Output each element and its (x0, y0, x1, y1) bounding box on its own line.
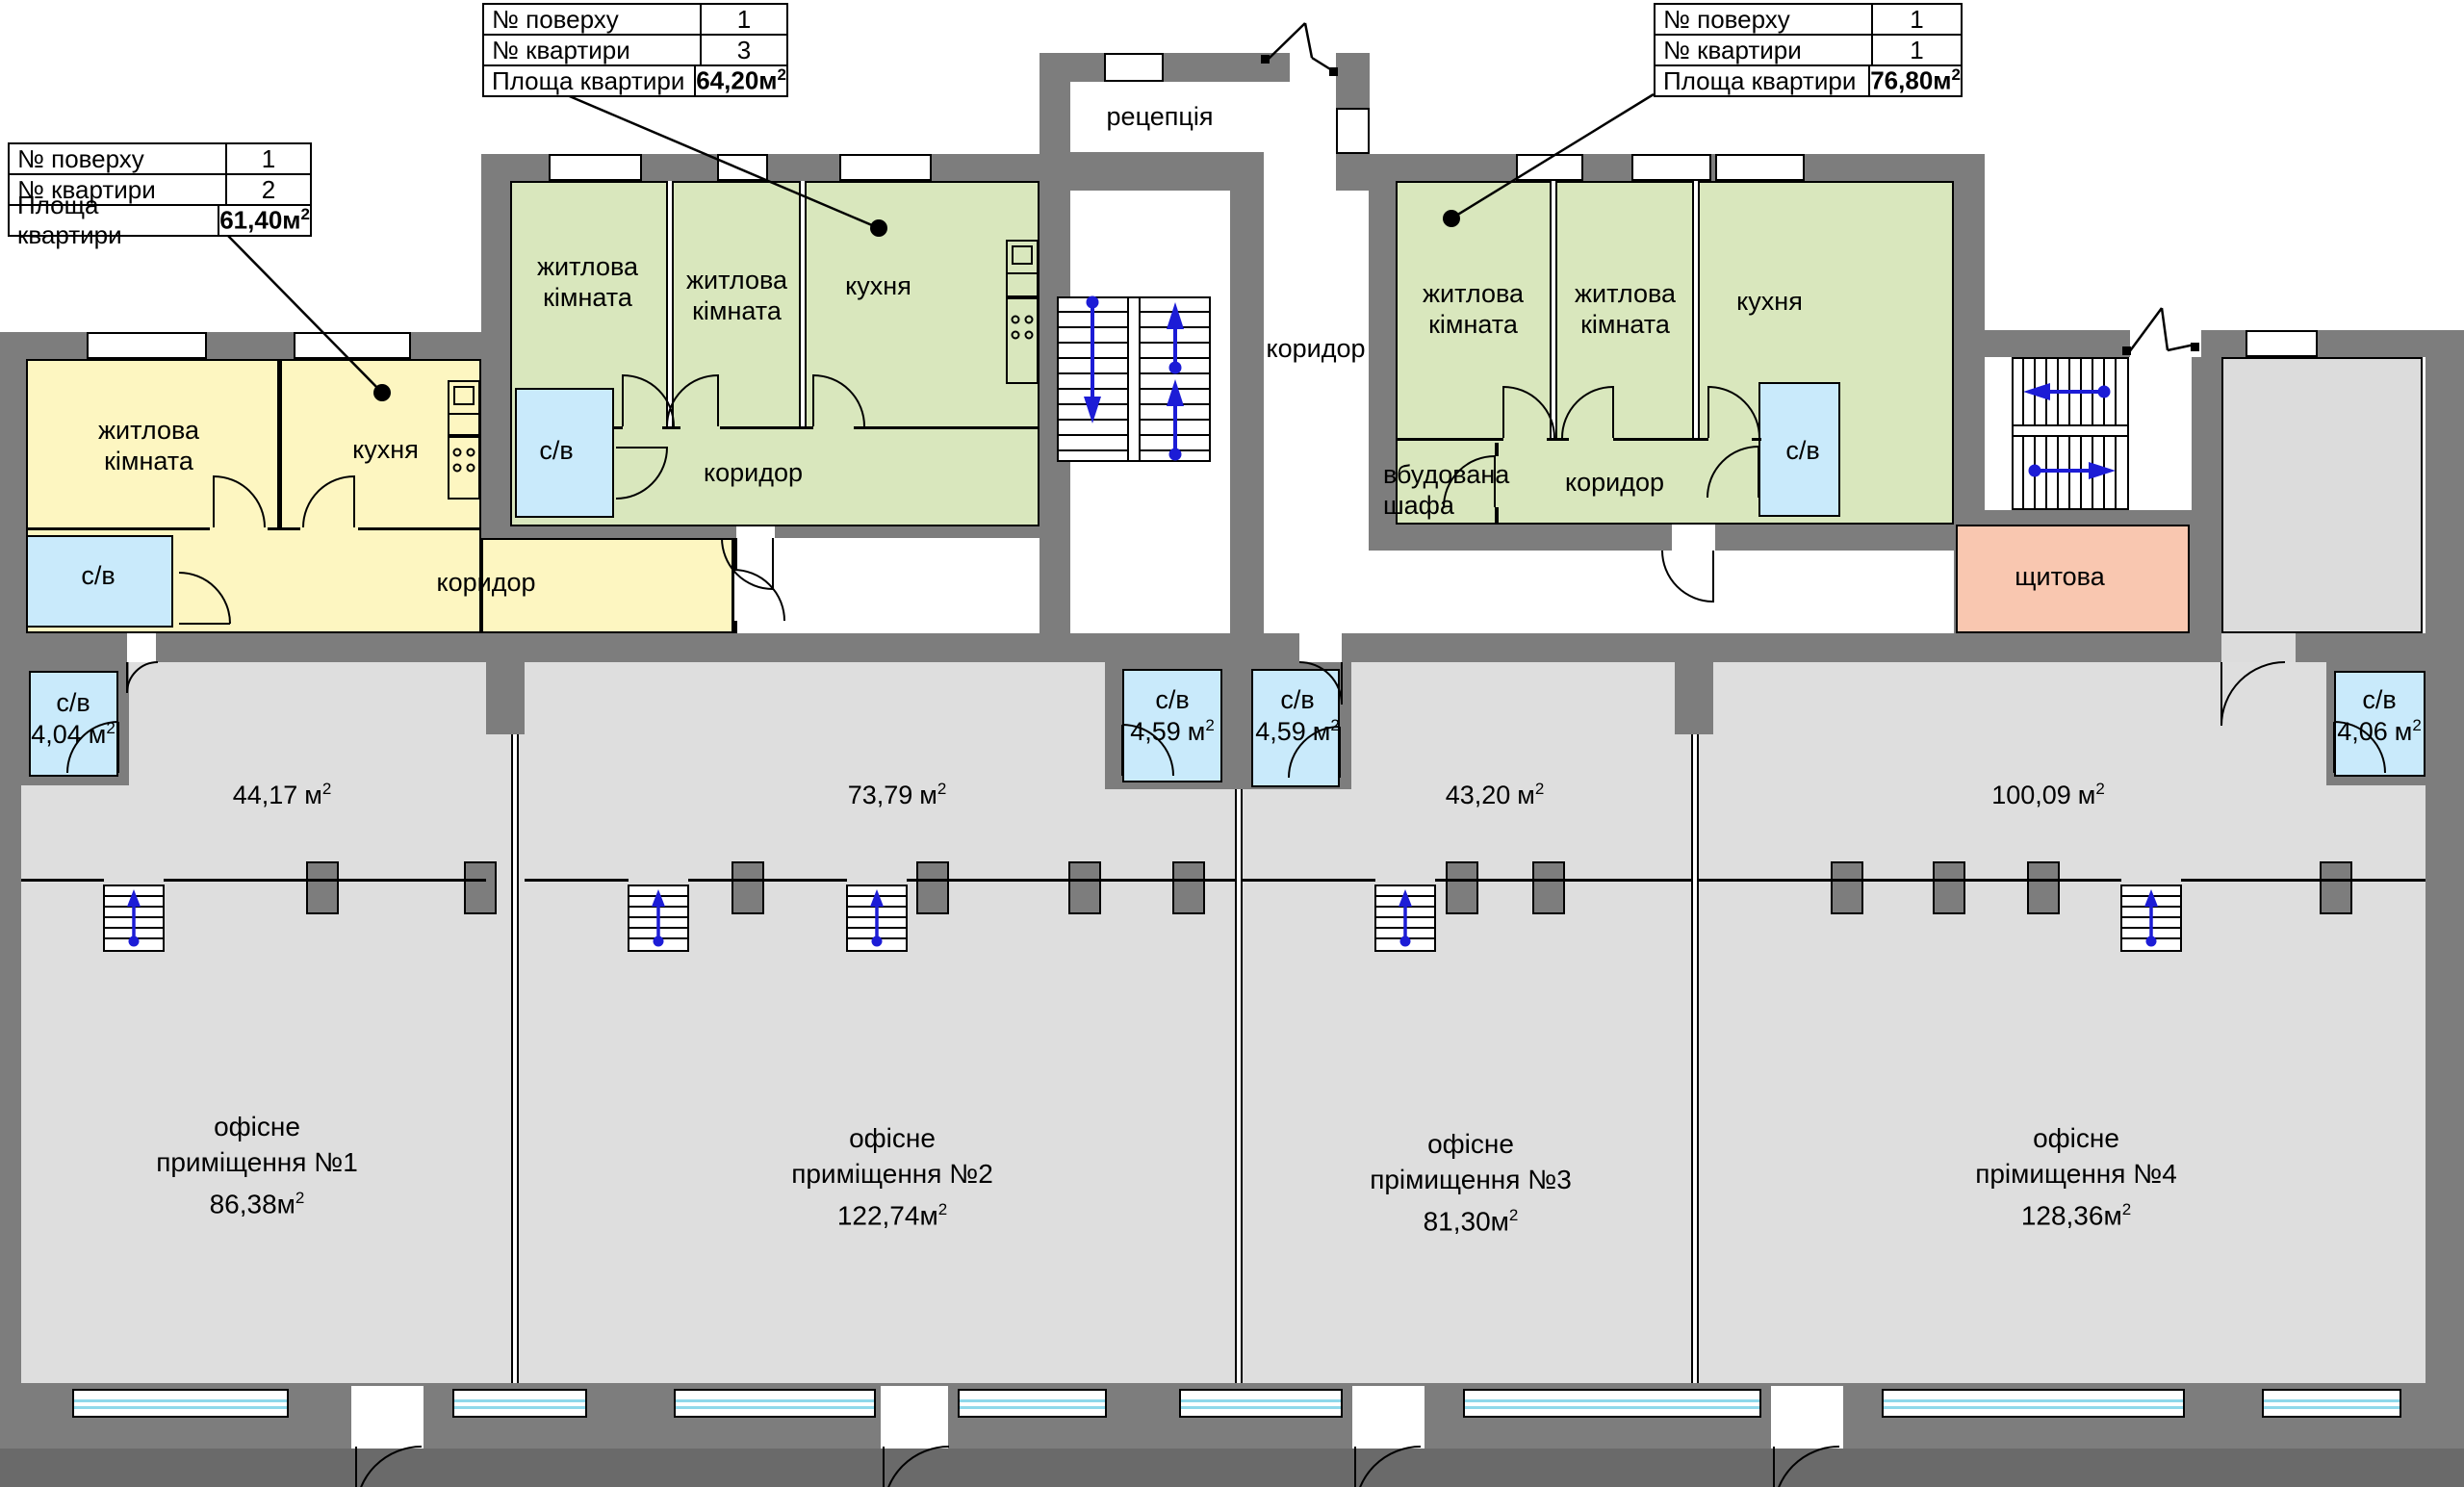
column (731, 861, 764, 914)
door-opening (736, 526, 775, 538)
table-cell-value: 2 (227, 175, 310, 205)
window (1882, 1389, 2185, 1418)
room-label-kitchen: кухня (1709, 287, 1830, 318)
room-label-bathroom: с/в (60, 561, 137, 592)
table-cell-value: 61,40м2 (219, 205, 310, 236)
room-label-corridor: коридор (674, 458, 833, 489)
wall (1613, 438, 1708, 441)
window (1104, 53, 1164, 82)
staircase-central (1057, 296, 1211, 462)
window (839, 154, 932, 181)
wall (0, 332, 510, 359)
column (2320, 861, 2352, 914)
window (2262, 1389, 2401, 1418)
office-label: офіснеприміщення №2 122,74м2 (743, 1120, 1041, 1233)
window (1179, 1389, 1343, 1418)
office-label: офіснепрімищення №4 128,36м2 (1927, 1120, 2225, 1233)
wall (1396, 438, 1503, 441)
wall (720, 426, 813, 429)
room-label-corridor: коридор (1535, 468, 1694, 499)
table-cell-label: № поверху (1655, 5, 1873, 34)
wall (662, 426, 680, 429)
table-cell-label: Площа квартири (1655, 66, 1870, 95)
room-label-kitchen: кухня (818, 271, 938, 302)
window (549, 154, 642, 181)
room-label-living: житлова кімната (1394, 279, 1553, 341)
wall (733, 621, 737, 633)
table-cell-value: 1 (702, 5, 786, 35)
table-cell-value: 64,20м2 (696, 65, 786, 96)
wall (1235, 789, 1243, 1383)
info-table-apt3: № поверху1 № квартири3 Площа квартири64,… (482, 3, 788, 97)
table-row: № поверху1 (1655, 5, 1961, 36)
window (87, 332, 207, 359)
bathroom-label: с/в4,06м2 (2322, 685, 2437, 748)
door-opening (2221, 633, 2296, 662)
table-row: № поверху1 (484, 5, 786, 36)
wall (26, 527, 210, 530)
door-opening (1299, 633, 1342, 662)
window (958, 1389, 1107, 1418)
wall (854, 426, 1039, 429)
table-cell-value: 3 (702, 36, 786, 65)
table-cell-value: 1 (1873, 5, 1961, 35)
bathroom-label: с/в4,04м2 (15, 688, 131, 751)
wall (2201, 330, 2246, 357)
wall (1985, 510, 2199, 525)
column (464, 861, 497, 914)
wall (277, 359, 282, 527)
wall (358, 527, 481, 530)
room-label-wardrobe: вбудована шафа (1383, 460, 1532, 522)
room-label-kitchen: кухня (325, 435, 446, 466)
table-cell-label: № квартири (484, 36, 702, 64)
area-label: 100,09м2 (1962, 780, 2135, 811)
door-jamb (2191, 343, 2199, 351)
window (674, 1389, 876, 1418)
room-label-panel-room: щитова (1983, 562, 2137, 593)
wall (1243, 879, 1375, 882)
column (1068, 861, 1101, 914)
office-label: офіснепрімищення №3 81,30м2 (1322, 1126, 1620, 1239)
table-row: № поверху1 (10, 144, 310, 175)
table-row: № квартири3 (484, 36, 786, 66)
wall (1230, 191, 1264, 633)
window (717, 154, 768, 181)
column (1831, 861, 1863, 914)
room-label-bathroom: с/в (518, 436, 595, 467)
entrance-door (881, 1386, 948, 1449)
wall (2318, 330, 2425, 357)
entrance-door (351, 1386, 423, 1449)
wall (1495, 443, 1499, 456)
table-row: Площа квартири61,40м2 (10, 206, 310, 235)
floor-plan: № поверху1 № квартири2 Площа квартири61,… (0, 0, 2464, 1487)
wall (907, 879, 1235, 882)
table-row: Площа квартири76,80м2 (1655, 66, 1961, 95)
column (2027, 861, 2060, 914)
wall (2190, 510, 2221, 633)
vestibule (2221, 357, 2423, 633)
window (294, 332, 411, 359)
wall (1752, 438, 1761, 441)
wall (614, 426, 623, 429)
column (1933, 861, 1965, 914)
room-label-living: житлова кімната (657, 266, 816, 327)
table-cell-label: Площа квартири (10, 206, 219, 235)
room-label-corridor: коридор (1239, 334, 1393, 365)
room-label-living: житлова кімната (1546, 279, 1705, 341)
wall (525, 879, 629, 882)
room-label-living: житлова кімната (508, 252, 667, 314)
wall (481, 154, 510, 538)
window (1463, 1389, 1761, 1418)
table-cell-label: № поверху (484, 5, 702, 34)
wall (1052, 152, 1264, 191)
table-row: № квартири1 (1655, 36, 1961, 66)
window (1631, 154, 1711, 181)
table-cell-label: № поверху (10, 144, 227, 173)
wall (268, 527, 300, 530)
info-table-apt1: № поверху1 № квартири1 Площа квартири76,… (1654, 3, 1963, 97)
wall (688, 879, 847, 882)
bathroom-label: с/в4,59м2 (1115, 685, 1230, 748)
wall (1435, 879, 1691, 882)
wall (2181, 879, 2425, 882)
room-label-reception: рецепція (1083, 102, 1237, 133)
window (452, 1389, 587, 1418)
wall (1547, 438, 1569, 441)
wall (733, 538, 737, 570)
wall (511, 734, 519, 1383)
table-cell-value: 1 (1873, 36, 1961, 65)
column (1172, 861, 1205, 914)
door-opening (1672, 525, 1715, 551)
wall (1691, 734, 1699, 1383)
column (1446, 861, 1478, 914)
wall (2425, 330, 2464, 1449)
bathroom-label: с/в4,59м2 (1240, 685, 1355, 748)
wall (164, 879, 486, 882)
entrance-door (1771, 1386, 1843, 1449)
office-label: офіснеприміщення №1 86,38м2 (108, 1109, 406, 1221)
table-cell-label: Площа квартири (484, 66, 696, 95)
table-cell-value: 1 (227, 144, 310, 174)
room-label-corridor: коридор (409, 568, 563, 599)
table-cell-label: № квартири (1655, 36, 1873, 64)
column (916, 861, 949, 914)
area-label: 44,17м2 (195, 780, 369, 811)
staircase-right (2012, 357, 2129, 510)
table-cell-value: 76,80м2 (1870, 65, 1961, 96)
window (1336, 108, 1370, 154)
area-label: 73,79м2 (810, 780, 984, 811)
wall (0, 633, 2464, 662)
window (2246, 330, 2318, 357)
column (306, 861, 339, 914)
wall (510, 526, 1042, 538)
wall (0, 662, 21, 1383)
wall (21, 879, 104, 882)
room-label-living: житлова кімната (69, 416, 228, 477)
wall (1985, 330, 2130, 357)
wall (486, 662, 525, 734)
wall (1044, 53, 1290, 82)
info-table-apt2: № поверху1 № квартири2 Площа квартири61,… (8, 142, 312, 237)
wall (0, 359, 26, 647)
entrance-door (1352, 1386, 1424, 1449)
room-label-bathroom: с/в (1764, 436, 1841, 467)
wall (2192, 357, 2221, 510)
table-row: Площа квартири64,20м2 (484, 66, 786, 95)
door-opening (127, 633, 156, 662)
column (1532, 861, 1565, 914)
area-label: 43,20м2 (1408, 780, 1581, 811)
pavement-strip (0, 1449, 2464, 1487)
window (1715, 154, 1805, 181)
wall (1675, 662, 1713, 734)
wall (1699, 879, 2121, 882)
window (1516, 154, 1583, 181)
window (72, 1389, 289, 1418)
